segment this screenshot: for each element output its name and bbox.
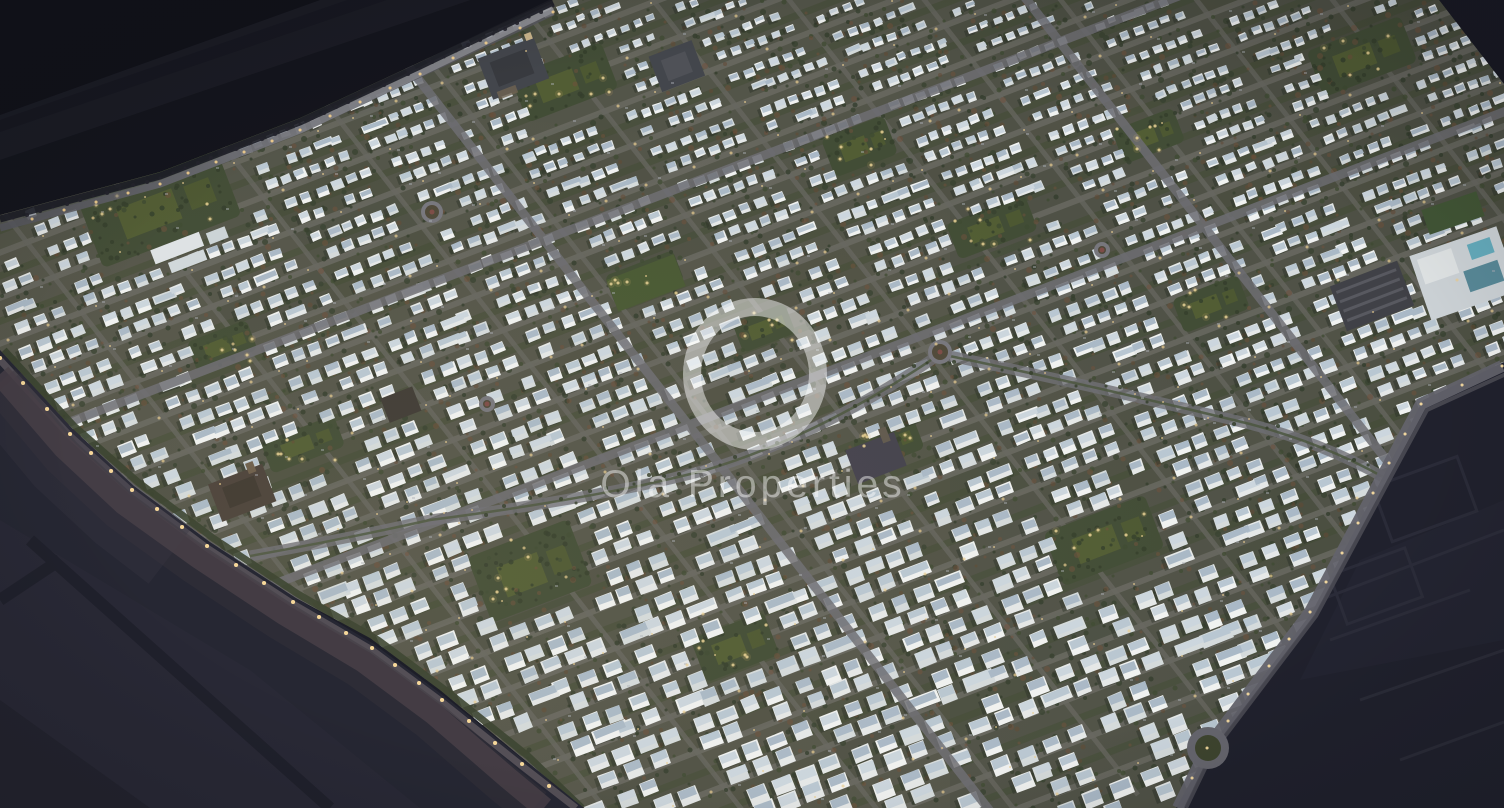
svg-text:Ola Properties: Ola Properties bbox=[600, 463, 905, 506]
